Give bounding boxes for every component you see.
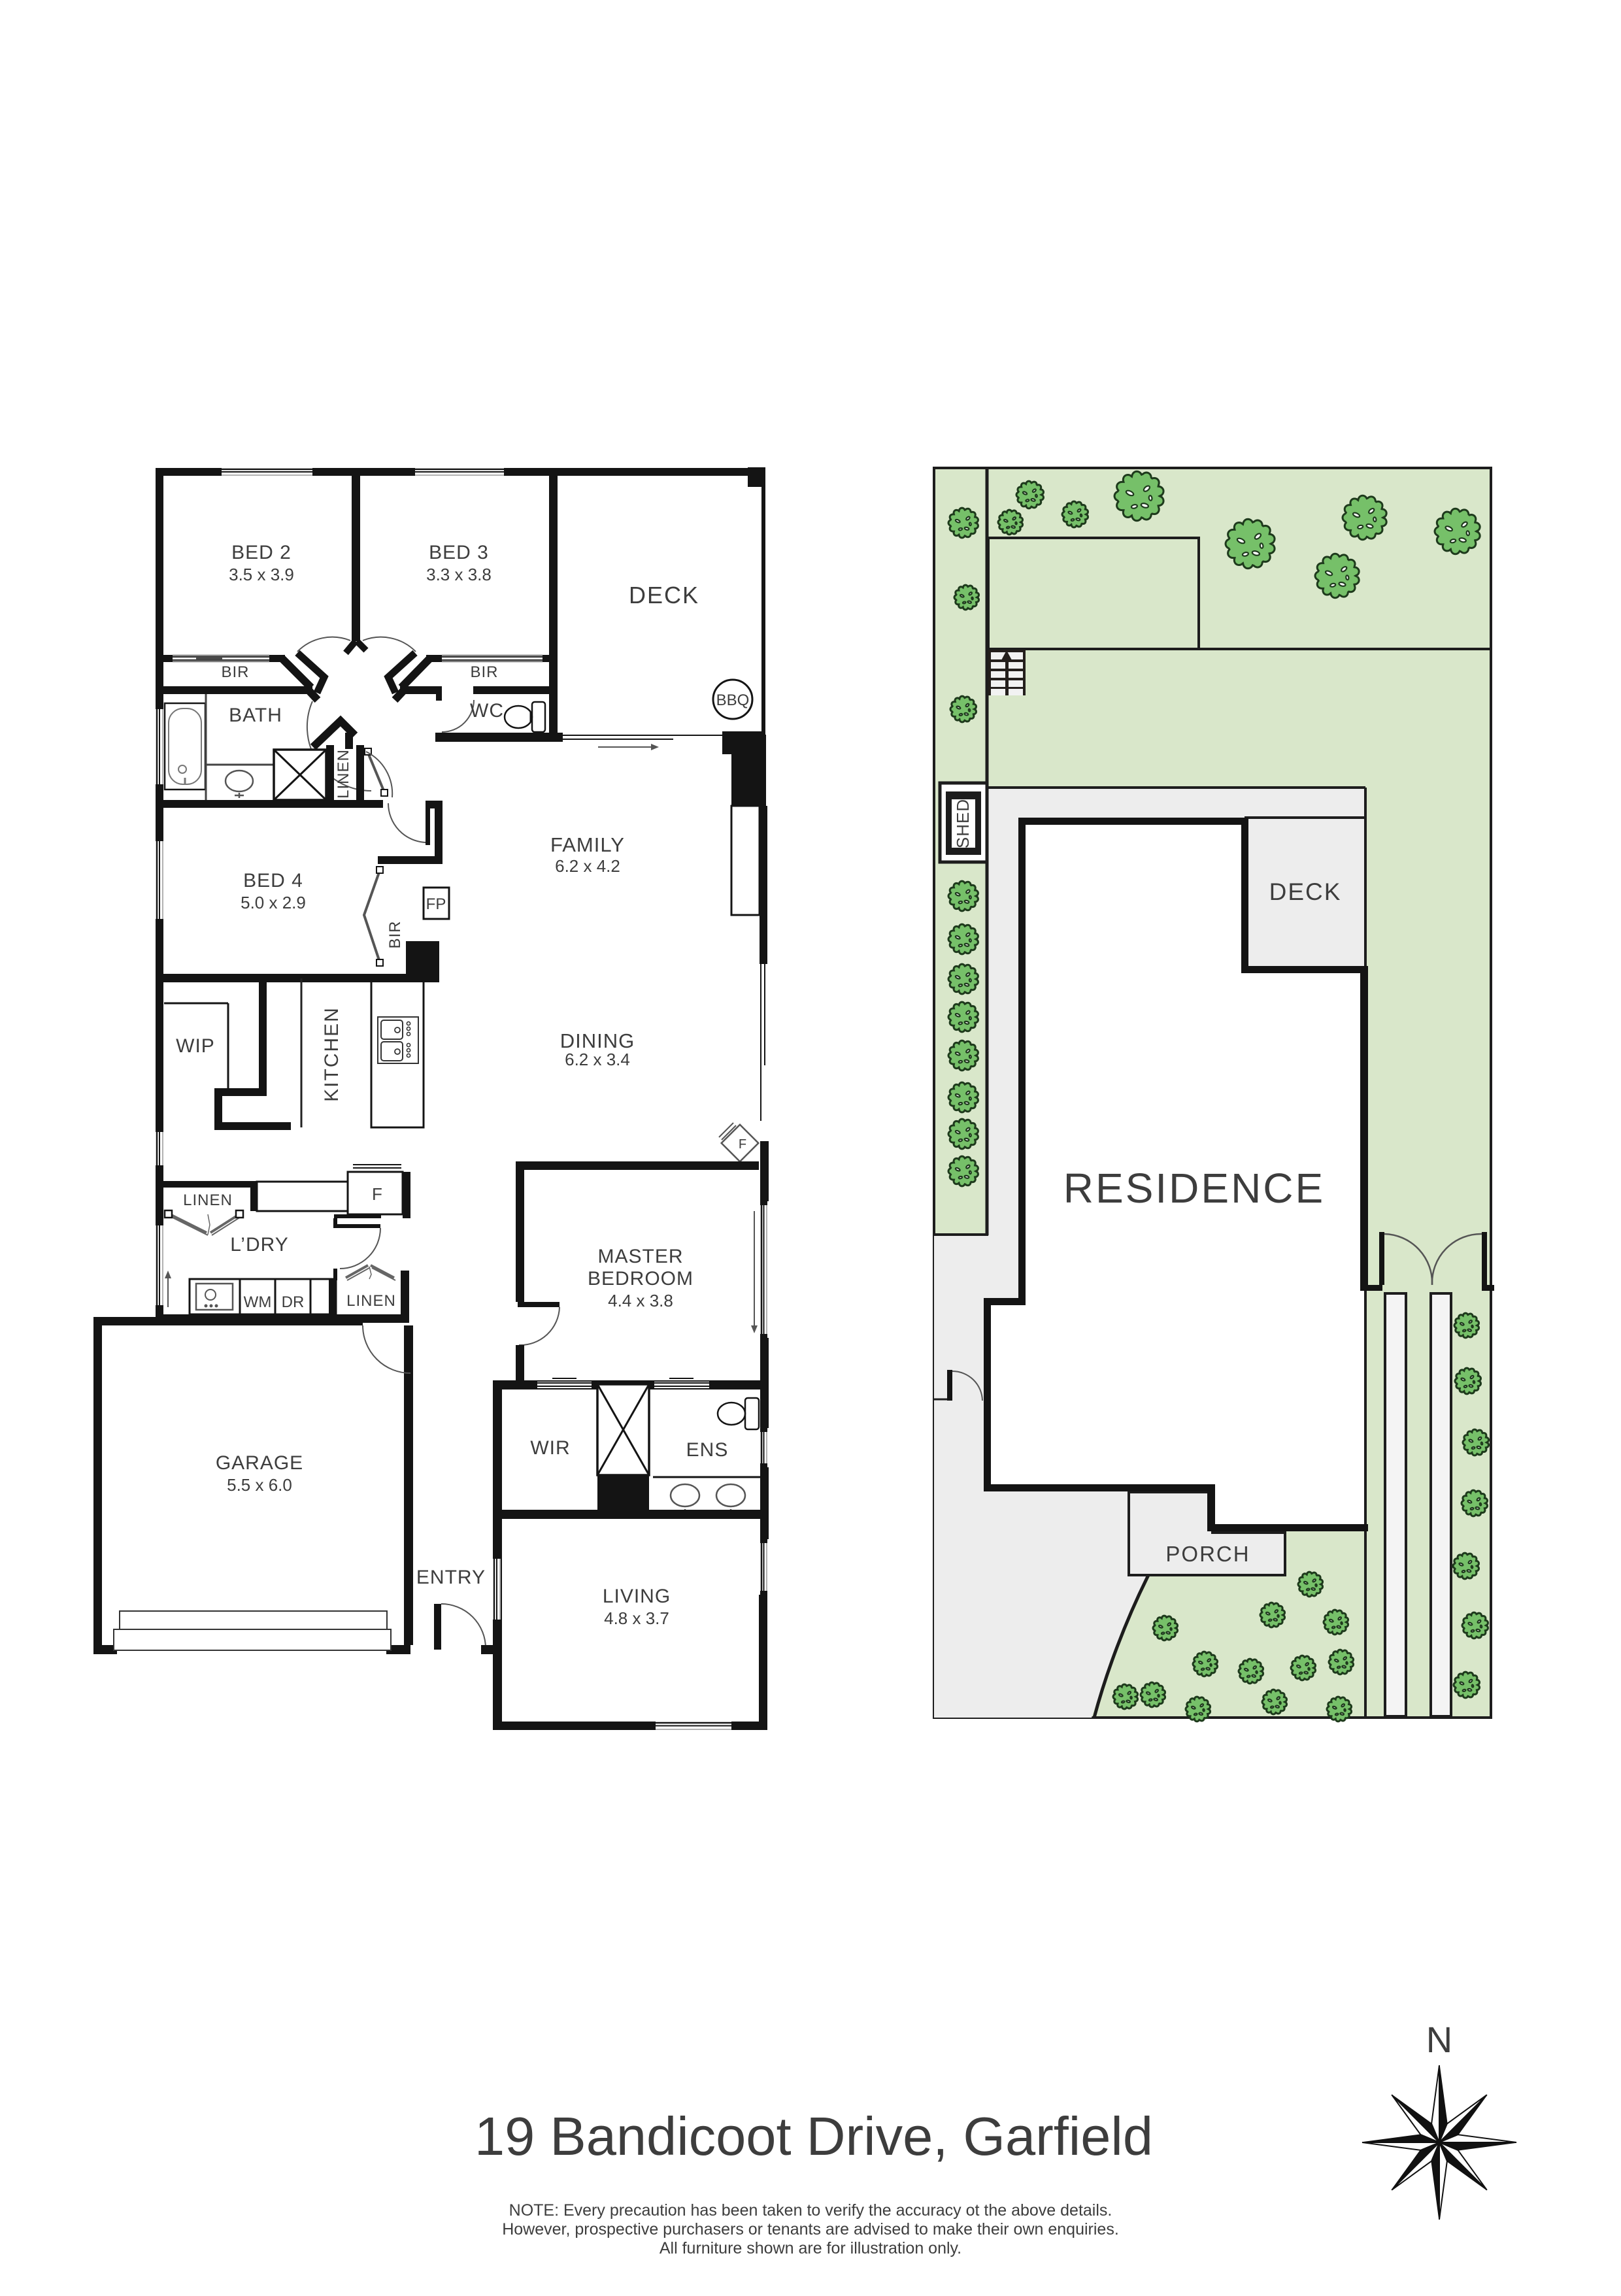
svg-text:BIR: BIR xyxy=(221,663,249,681)
svg-text:BATH: BATH xyxy=(229,705,282,726)
svg-text:MASTER: MASTER xyxy=(597,1246,683,1267)
svg-text:LINEN: LINEN xyxy=(346,1292,396,1310)
svg-text:BIR: BIR xyxy=(470,663,498,681)
svg-text:6.2 x 4.2: 6.2 x 4.2 xyxy=(555,856,620,876)
svg-text:DR: DR xyxy=(282,1293,305,1311)
svg-text:DINING: DINING xyxy=(560,1029,635,1052)
svg-text:ENS: ENS xyxy=(686,1439,729,1461)
svg-text:LINEN: LINEN xyxy=(335,749,352,799)
svg-text:KITCHEN: KITCHEN xyxy=(321,1007,343,1102)
svg-text:BED 2: BED 2 xyxy=(231,542,292,563)
svg-text:FP: FP xyxy=(426,895,446,913)
svg-text:19 Bandicoot Drive, Garfield: 19 Bandicoot Drive, Garfield xyxy=(475,2106,1153,2167)
svg-text:5.5 x 6.0: 5.5 x 6.0 xyxy=(227,1475,292,1495)
svg-text:N: N xyxy=(1426,2019,1452,2060)
svg-text:F: F xyxy=(372,1184,382,1204)
svg-text:BEDROOM: BEDROOM xyxy=(588,1268,694,1289)
svg-text:3.5 x 3.9: 3.5 x 3.9 xyxy=(229,565,294,584)
svg-text:FAMILY: FAMILY xyxy=(550,833,625,856)
svg-text:BBQ: BBQ xyxy=(716,691,750,709)
svg-text:BED 3: BED 3 xyxy=(429,542,489,563)
svg-text:F: F xyxy=(739,1137,746,1152)
svg-text:All furniture shown are for il: All furniture shown are for illustration… xyxy=(660,2239,961,2257)
svg-text:5.0 x 2.9: 5.0 x 2.9 xyxy=(241,893,306,912)
svg-text:LINEN: LINEN xyxy=(183,1191,233,1209)
svg-text:RESIDENCE: RESIDENCE xyxy=(1063,1165,1325,1212)
svg-text:BIR: BIR xyxy=(386,920,404,948)
svg-text:WIR: WIR xyxy=(530,1437,570,1459)
svg-text:DECK: DECK xyxy=(1269,878,1342,905)
svg-text:WIP: WIP xyxy=(176,1035,215,1057)
svg-text:L’DRY: L’DRY xyxy=(230,1234,289,1256)
svg-text:3.3 x 3.8: 3.3 x 3.8 xyxy=(426,565,492,584)
svg-text:ENTRY: ENTRY xyxy=(416,1567,486,1588)
svg-text:DECK: DECK xyxy=(629,582,699,608)
svg-text:LIVING: LIVING xyxy=(603,1586,671,1607)
svg-text:GARAGE: GARAGE xyxy=(216,1452,303,1474)
svg-text:However, prospective purchaser: However, prospective purchasers or tenan… xyxy=(502,2220,1119,2238)
svg-text:WC: WC xyxy=(470,700,504,722)
svg-text:6.2 x 3.4: 6.2 x 3.4 xyxy=(565,1050,630,1069)
svg-text:NOTE: Every precaution has bee: NOTE: Every precaution has been taken to… xyxy=(509,2201,1112,2220)
svg-text:4.8 x 3.7: 4.8 x 3.7 xyxy=(604,1608,669,1628)
svg-text:PORCH: PORCH xyxy=(1165,1542,1250,1566)
svg-text:SHED: SHED xyxy=(953,799,973,848)
svg-text:BED 4: BED 4 xyxy=(243,870,303,891)
svg-text:WM: WM xyxy=(244,1293,272,1311)
svg-text:4.4 x 3.8: 4.4 x 3.8 xyxy=(608,1291,673,1310)
